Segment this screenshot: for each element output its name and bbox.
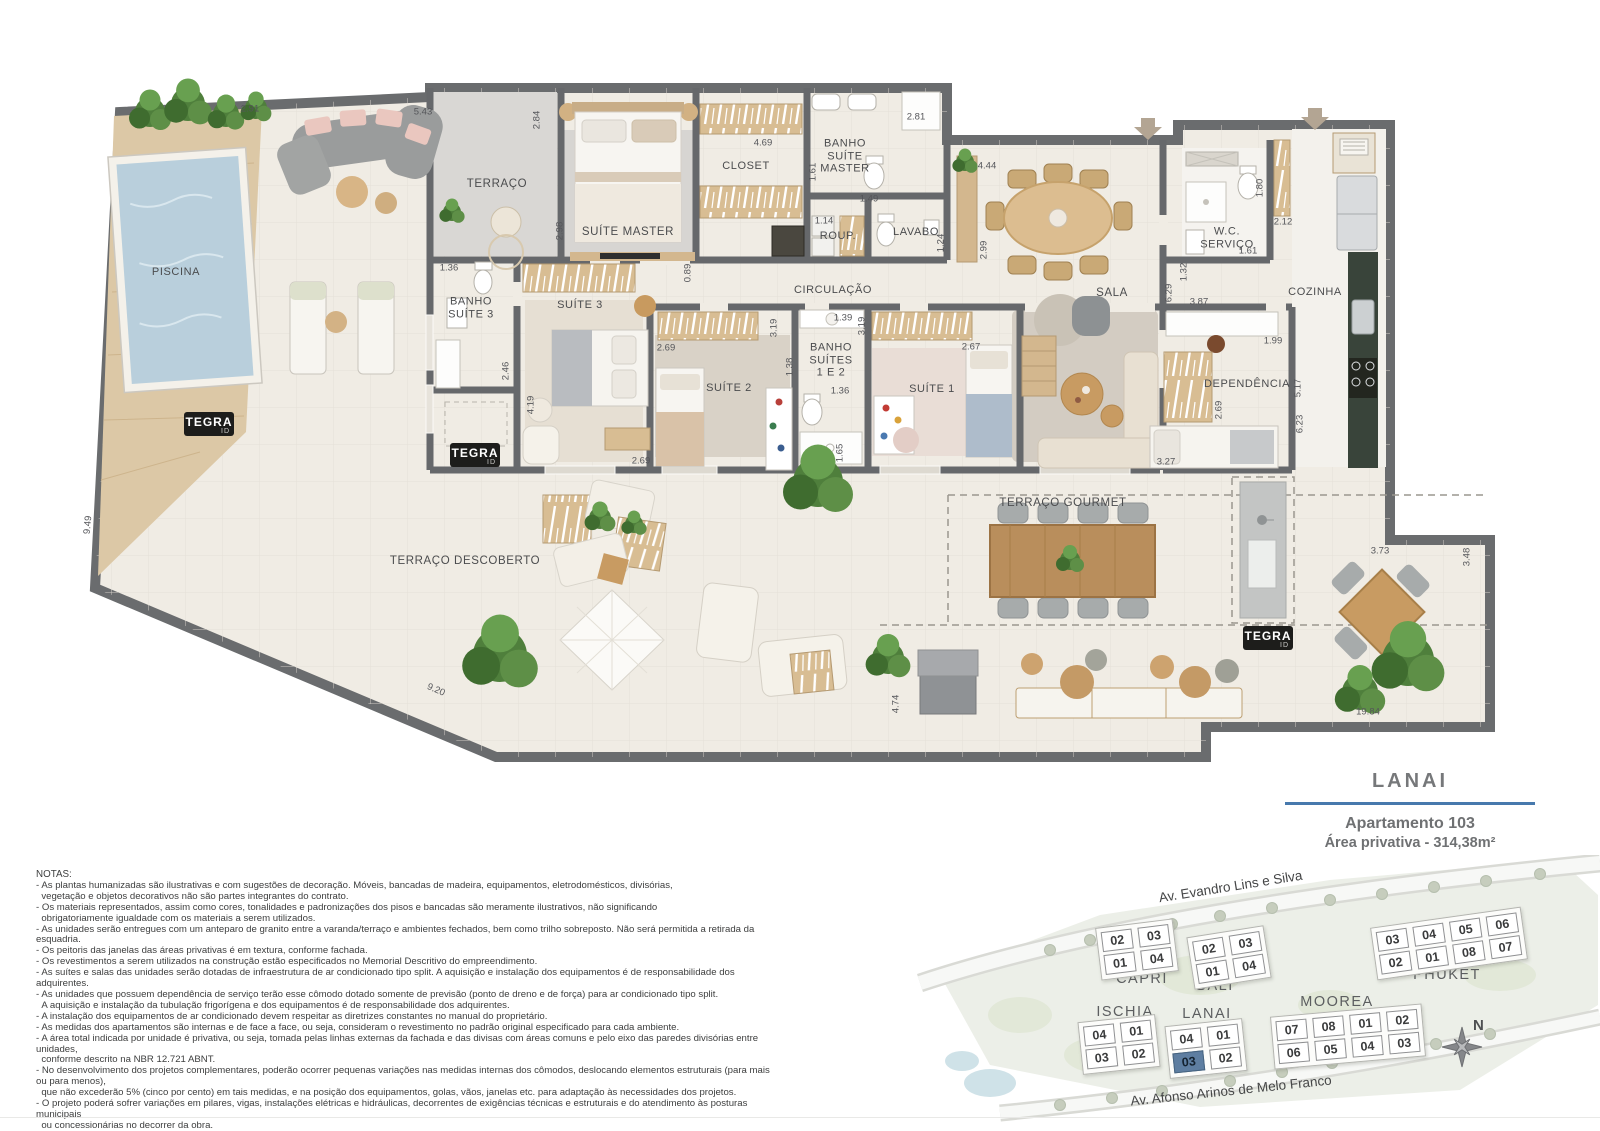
dim-label: 3.87 — [1190, 297, 1209, 308]
tegra-id-logo: TEGRA ID — [184, 412, 234, 436]
unit-cell: 04 — [1232, 954, 1266, 979]
room-label-terraco: TERRAÇO — [467, 178, 527, 191]
unit-cell: 01 — [1120, 1020, 1153, 1043]
dim-label: 2.46 — [501, 362, 512, 381]
unit-cell: 04 — [1083, 1023, 1116, 1046]
room-label-suite-master: SUÍTE MASTER — [582, 226, 674, 239]
private-area: Área privativa - 314,38m² — [1285, 835, 1535, 851]
dim-label: 2.91 — [241, 104, 260, 115]
unit-cell: 02 — [1101, 929, 1134, 953]
dim-label: 2.69 — [1214, 401, 1225, 420]
dim-label: 3.48 — [1462, 548, 1473, 567]
tegra-id-logo: TEGRA ID — [450, 443, 500, 467]
dim-label: 4.19 — [526, 396, 537, 415]
compass-north-label: N — [1473, 1017, 1484, 1034]
dim-label: 6.29 — [1164, 284, 1175, 303]
dim-label: 9.49 — [82, 515, 95, 534]
dim-label: 1.80 — [1255, 179, 1266, 198]
dim-label: 2.69 — [657, 343, 676, 354]
unit-cell: 03 — [1376, 928, 1409, 952]
building-capri: 0201 0304 — [1095, 918, 1179, 980]
dim-label: 1.24 — [936, 234, 947, 253]
unit-cell: 04 — [1170, 1027, 1203, 1050]
apartment-info: LANAI Apartamento 103 Área privativa - 3… — [1285, 770, 1535, 851]
dim-label: 2.84 — [532, 111, 543, 130]
dim-label: 6.23 — [1295, 415, 1306, 434]
room-label-dependencia: DEPENDÊNCIA — [1204, 378, 1290, 391]
unit-cell: 04 — [1412, 923, 1445, 947]
dim-label: 1.61 — [808, 163, 819, 182]
dim-label: 3.27 — [1157, 457, 1176, 468]
unit-cell: 03 — [1137, 924, 1170, 948]
pouf — [375, 192, 397, 214]
apartment-number: Apartamento 103 — [1285, 815, 1535, 833]
dim-label: 1.32 — [1179, 263, 1190, 282]
unit-cell: 01 — [1207, 1024, 1240, 1047]
dim-label: 1.99 — [1264, 336, 1283, 347]
site-map: Av. Evandro Lins e Silva Av. Afonso Arin… — [900, 855, 1600, 1131]
room-label-suite3: SUÍTE 3 — [557, 299, 603, 312]
dim-label: 2.98 — [555, 222, 566, 241]
room-label-suite1: SUÍTE 1 — [909, 383, 955, 396]
room-label-sala: SALA — [1096, 287, 1128, 300]
unit-cell: 03 — [1085, 1046, 1118, 1069]
unit-cell: 02 — [1122, 1042, 1155, 1065]
note-line: - No desenvolvimento dos projetos comple… — [36, 1066, 781, 1088]
tegra-logo-text: TEGRA — [452, 446, 499, 460]
dim-label: 2.99 — [979, 241, 990, 260]
tegra-logo-text: TEGRA — [1245, 629, 1292, 643]
pouf — [336, 176, 368, 208]
building-ischia: 0403 0102 — [1077, 1014, 1160, 1075]
tegra-id-text: ID — [487, 459, 496, 466]
page-bottom-rule — [0, 1117, 1600, 1118]
dim-label: 1.49 — [860, 194, 879, 205]
dim-label: 3.73 — [1371, 546, 1390, 557]
unit-cell: 03 — [1388, 1032, 1421, 1055]
dim-label: 4.74 — [891, 695, 902, 714]
room-label-roup: ROUP. — [820, 230, 856, 243]
dim-label: 1.36 — [440, 263, 459, 274]
dim-label: 2.81 — [907, 112, 926, 123]
dim-label: 3.19 — [857, 317, 868, 336]
room-label-closet: CLOSET — [722, 160, 770, 173]
room-label-banho-suite3: BANHO SUÍTE 3 — [448, 296, 494, 321]
room-label-suite2: SUÍTE 2 — [706, 382, 752, 395]
unit-cell: 07 — [1489, 935, 1522, 959]
dim-label: 0.89 — [683, 264, 694, 283]
unit-cell: 04 — [1351, 1035, 1384, 1058]
unit-cell: 02 — [1192, 937, 1226, 962]
dim-label: 3.19 — [769, 319, 780, 338]
unit-cell: 01 — [1103, 951, 1136, 975]
notes-block: NOTAS: - As plantas humanizadas são ilus… — [36, 870, 781, 1131]
unit-cell-highlighted: 03 — [1172, 1050, 1205, 1073]
unit-cell: 01 — [1349, 1012, 1382, 1035]
info-divider — [1285, 802, 1535, 805]
unit-cell: 02 — [1379, 951, 1412, 975]
unit-cell: 04 — [1140, 947, 1173, 971]
unit-cell: 05 — [1449, 917, 1482, 941]
unit-cell: 08 — [1452, 940, 1485, 964]
note-line: - As suítes e salas das unidades serão d… — [36, 968, 781, 990]
tower-name: LANAI — [1285, 770, 1535, 793]
dim-label: 2.67 — [962, 342, 981, 353]
dim-label: 1.38 — [785, 358, 796, 377]
note-line: - As unidades serão entregues com um ant… — [36, 925, 781, 947]
tegra-id-text: ID — [221, 428, 230, 435]
note-line: - As medidas dos apartamentos são intern… — [36, 1023, 781, 1034]
dim-label: 1.39 — [834, 313, 853, 324]
unit-cell: 02 — [1386, 1009, 1419, 1032]
room-label-banho-suites12: BANHO SUÍTES 1 E 2 — [809, 341, 852, 379]
unit-cell: 06 — [1277, 1041, 1310, 1064]
note-line: ou concessionárias no decorrer da obra. — [36, 1121, 781, 1131]
note-line: obrigatoriamente igualdade com os materi… — [36, 914, 781, 925]
room-label-piscina: PISCINA — [152, 266, 200, 279]
dim-label: 1.61 — [1239, 246, 1258, 257]
unit-cell: 08 — [1312, 1015, 1345, 1038]
unit-cell: 05 — [1314, 1038, 1347, 1061]
room-label-cozinha: COZINHA — [1288, 286, 1342, 299]
unit-cell: 03 — [1229, 931, 1263, 956]
tegra-logo-text: TEGRA — [186, 415, 233, 429]
room-label-terraco-gourmet: TERRAÇO GOURMET — [999, 497, 1126, 510]
dim-label: 1.65 — [835, 444, 846, 463]
unit-cell: 02 — [1209, 1046, 1242, 1069]
room-label-circulacao: CIRCULAÇÃO — [794, 284, 872, 297]
note-line: - Os materiais representados, assim como… — [36, 903, 781, 914]
floorplan-page: TERRAÇO SUÍTE MASTER CLOSET BANHO SUÍTE … — [0, 0, 1600, 1131]
building-lanai: 0403 0102 — [1164, 1018, 1247, 1079]
dim-label: 2.69 — [632, 456, 651, 467]
unit-cell: 07 — [1275, 1019, 1308, 1042]
dim-label: 19.84 — [1356, 707, 1380, 718]
room-label-terraco-descoberto: TERRAÇO DESCOBERTO — [390, 555, 540, 568]
room-label-lavabo: LAVABO — [893, 226, 939, 239]
unit-cell: 01 — [1196, 959, 1230, 984]
dim-label: 5.17 — [1293, 379, 1304, 398]
unit-cell: 01 — [1416, 945, 1449, 969]
dim-label: 1.36 — [831, 386, 850, 397]
dim-label: 4.69 — [754, 138, 773, 149]
dim-label: 4.44 — [978, 161, 997, 172]
note-line: - A área total indicada por unidade é pr… — [36, 1034, 781, 1056]
room-label-banho-master: BANHO SUÍTE MASTER — [820, 137, 869, 175]
tegra-id-text: ID — [1280, 642, 1289, 649]
dim-label: 2.12 — [1274, 217, 1293, 228]
tegra-id-logo: TEGRA ID — [1243, 626, 1293, 650]
dim-label: 1.14 — [815, 216, 834, 227]
dim-label: 5.43 — [414, 107, 433, 118]
unit-cell: 06 — [1486, 912, 1519, 936]
